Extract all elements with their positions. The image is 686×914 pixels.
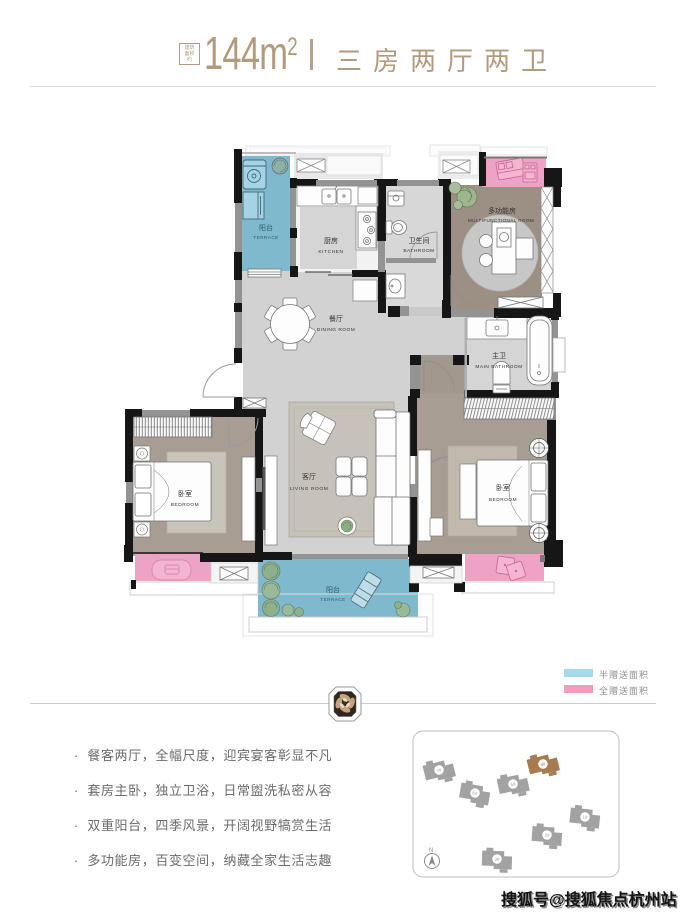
svg-text:厨房: 厨房: [324, 236, 338, 245]
svg-text:MAIN BATHROOM: MAIN BATHROOM: [475, 364, 522, 370]
svg-text:BEDROOM: BEDROOM: [489, 497, 517, 503]
svg-text:MULTIFUNCTIONAL ROOM: MULTIFUNCTIONAL ROOM: [468, 218, 534, 223]
svg-text:TERRACE: TERRACE: [320, 597, 345, 602]
svg-text:卧室: 卧室: [496, 483, 510, 492]
svg-text:餐厅: 餐厅: [329, 314, 343, 323]
svg-text:卧室: 卧室: [178, 489, 192, 498]
svg-text:3#: 3#: [494, 857, 500, 862]
svg-text:多功能房: 多功能房: [488, 206, 516, 215]
svg-text:客厅: 客厅: [302, 472, 316, 481]
svg-text:TERRACE: TERRACE: [253, 235, 278, 240]
svg-text:阳台: 阳台: [326, 585, 340, 594]
svg-text:主卫: 主卫: [492, 351, 506, 360]
svg-text:1#: 1#: [582, 815, 588, 821]
svg-text:DINING ROOM: DINING ROOM: [317, 327, 356, 333]
svg-text:卫生间: 卫生间: [409, 236, 430, 245]
svg-text:2#: 2#: [544, 833, 550, 838]
svg-text:阳台: 阳台: [259, 223, 273, 232]
svg-text:LIVING ROOM: LIVING ROOM: [290, 486, 329, 492]
svg-text:BEDROOM: BEDROOM: [171, 502, 199, 508]
svg-text:BATHROOM: BATHROOM: [403, 248, 434, 254]
svg-text:KITCHEN: KITCHEN: [318, 249, 343, 255]
